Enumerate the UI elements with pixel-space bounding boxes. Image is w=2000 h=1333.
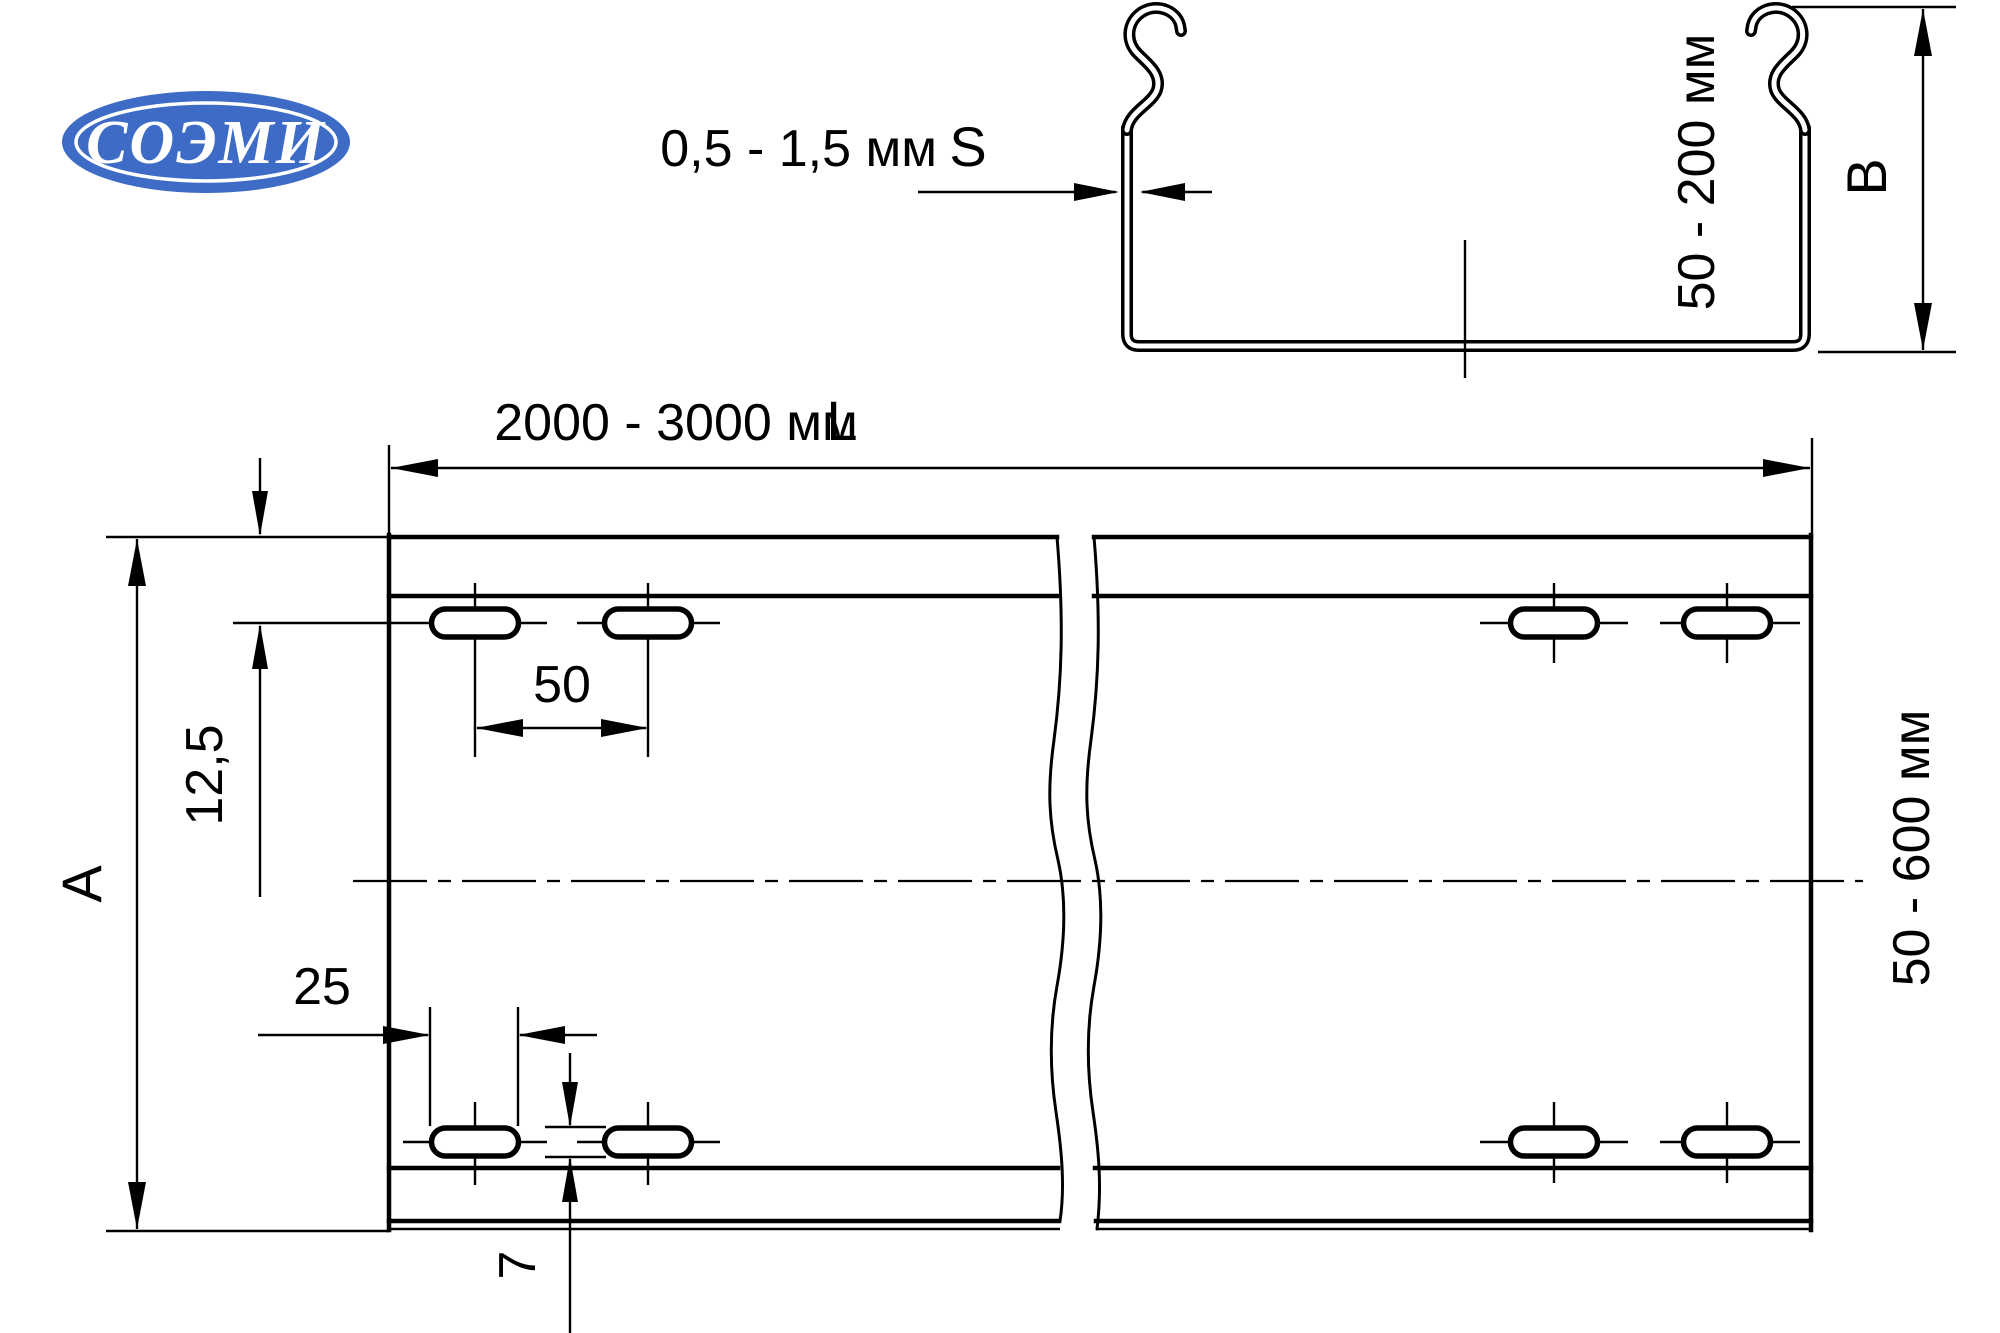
slot-pitch-label: 50 — [533, 656, 591, 714]
arrowhead-left-icon — [476, 719, 523, 737]
arrowhead-down-icon — [252, 491, 268, 536]
arrowhead-up-icon — [562, 1157, 578, 1202]
soemi-logo: СОЭМИ — [62, 91, 350, 193]
slot-row-centerlines — [233, 623, 1800, 1142]
arrowhead-down-icon — [562, 1082, 578, 1127]
dimension-slot-pitch: 50 — [476, 656, 648, 737]
width-value-label: 50 - 600 мм — [1883, 710, 1941, 987]
slot-hole — [605, 1128, 692, 1156]
arrowhead-up-icon — [1914, 9, 1932, 56]
length-symbol-label: L — [826, 389, 857, 452]
dimension-length: 2000 - 3000 мм L — [389, 389, 1812, 533]
dimension-side-height: 50 - 200 мм B — [1668, 7, 1956, 352]
slot-hole — [1511, 609, 1598, 637]
arrowhead-down-icon — [128, 1182, 146, 1229]
logo-text: СОЭМИ — [86, 109, 326, 177]
drawing-page: СОЭМИ 0,5 - 1,5 мм S 50 - 2 — [0, 0, 2000, 1333]
dimension-slot-length: 25 — [258, 958, 597, 1126]
arrowhead-down-icon — [1914, 303, 1932, 350]
slot-hole — [605, 609, 692, 637]
width-symbol-label: A — [50, 865, 113, 903]
slot-length-label: 25 — [293, 958, 351, 1016]
arrowhead-right-icon — [383, 1026, 430, 1044]
arrowhead-right-icon — [1074, 183, 1119, 201]
dimension-slot-width: 7 — [489, 1053, 606, 1333]
side-height-symbol-label: B — [1835, 158, 1898, 195]
arrowhead-left-icon — [391, 459, 438, 477]
slot-hole — [1511, 1128, 1598, 1156]
break-line-left — [1050, 537, 1064, 1221]
arrowhead-right-icon — [601, 719, 648, 737]
slot-hole — [432, 1128, 519, 1156]
slot-width-label: 7 — [489, 1251, 547, 1280]
arrowhead-up-icon — [252, 624, 268, 669]
arrowhead-left-icon — [1140, 183, 1185, 201]
plan-view: 2000 - 3000 мм L A 12,5 50 — [50, 389, 1941, 1333]
thickness-value-label: 0,5 - 1,5 мм — [660, 120, 937, 178]
technical-drawing: СОЭМИ 0,5 - 1,5 мм S 50 - 2 — [0, 0, 2000, 1333]
length-value-label: 2000 - 3000 мм — [494, 394, 858, 452]
dimension-width-a: A — [50, 537, 389, 1231]
arrowhead-right-icon — [1763, 459, 1810, 477]
slot-hole — [432, 609, 519, 637]
dimension-slot-row-offset: 12,5 — [176, 458, 268, 897]
arrowhead-left-icon — [518, 1026, 565, 1044]
slots — [432, 609, 1771, 1156]
slot-row-offset-label: 12,5 — [176, 724, 234, 825]
slot-hole — [1684, 609, 1771, 637]
thickness-symbol-label: S — [949, 115, 986, 178]
slot-cross-lines — [475, 583, 1727, 1185]
section-view: 0,5 - 1,5 мм S 50 - 200 мм B — [660, 7, 1956, 378]
slot-hole — [1684, 1128, 1771, 1156]
side-height-value-label: 50 - 200 мм — [1668, 34, 1726, 311]
break-line-right — [1087, 537, 1101, 1229]
arrowhead-up-icon — [128, 539, 146, 586]
